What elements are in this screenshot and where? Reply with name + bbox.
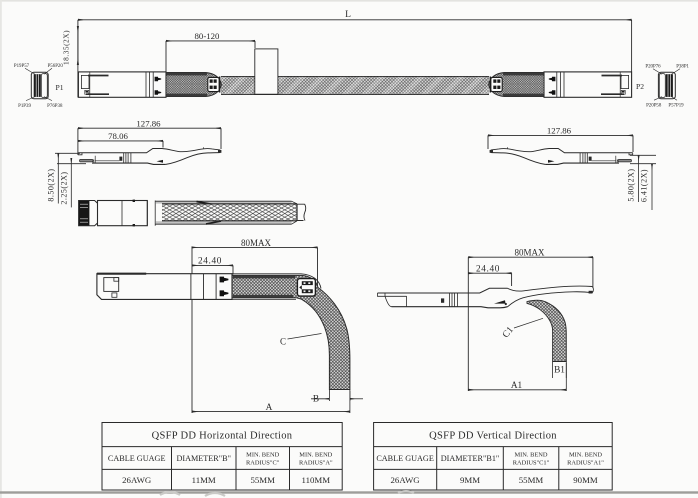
svg-text:2.25(2X): 2.25(2X) [60,171,69,204]
svg-text:RADIUS"A": RADIUS"A" [299,460,333,467]
svg-text:80MAX: 80MAX [241,238,272,248]
svg-text:110MM: 110MM [302,475,331,485]
svg-text:QSFP DD Horizontal Direction: QSFP DD Horizontal Direction [152,431,293,442]
svg-text:B1: B1 [554,366,565,376]
svg-text:B: B [313,394,319,404]
svg-text:11MM: 11MM [192,475,216,485]
svg-text:CABLE GUAGE: CABLE GUAGE [376,454,434,463]
svg-text:127.86: 127.86 [136,118,161,128]
svg-text:P57P19: P57P19 [668,103,684,108]
svg-text:RADIUS"C1": RADIUS"C1" [513,460,550,467]
svg-text:MIN. BEND: MIN. BEND [246,452,279,459]
svg-text:26AWG: 26AWG [391,475,421,485]
svg-text:DIAMETER"B": DIAMETER"B" [176,454,230,463]
svg-text:80-120: 80-120 [195,31,221,41]
svg-text:127.86: 127.86 [547,126,572,136]
svg-text:CABLE GUAGE: CABLE GUAGE [108,454,166,463]
svg-text:6.41(2X): 6.41(2X) [640,169,649,202]
svg-text:18.35(2X): 18.35(2X) [62,30,71,65]
svg-text:8.50(2X): 8.50(2X) [47,168,56,201]
svg-text:RADIUS"C": RADIUS"C" [246,460,280,467]
svg-text:55MM: 55MM [250,475,275,485]
svg-text:90MM: 90MM [573,475,598,485]
svg-text:55MM: 55MM [519,475,544,485]
svg-text:P2: P2 [636,82,644,91]
svg-text:78.06: 78.06 [108,131,128,141]
svg-text:RADIUS"A1": RADIUS"A1" [567,460,604,467]
svg-text:MIN. BEND: MIN. BEND [514,452,547,459]
svg-text:9MM: 9MM [460,475,480,485]
svg-text:P1: P1 [55,83,63,92]
svg-text:MIN. BEND: MIN. BEND [299,452,332,459]
svg-text:L: L [345,10,351,20]
svg-text:P20P58: P20P58 [646,103,662,108]
svg-text:5.80(2X): 5.80(2X) [627,168,636,201]
svg-text:26AWG: 26AWG [122,475,152,485]
svg-text:C: C [280,337,286,347]
svg-text:P76P38: P76P38 [47,104,63,109]
svg-text:P38P1: P38P1 [676,65,689,70]
svg-text:QSFP DD Vertical Direction: QSFP DD Vertical Direction [429,431,557,442]
svg-text:P19P57: P19P57 [14,64,30,69]
svg-text:P56P20: P56P20 [48,64,64,69]
svg-text:80MAX: 80MAX [514,247,545,257]
svg-text:P1P39: P1P39 [18,104,31,109]
svg-text:DIAMETER"B1": DIAMETER"B1" [441,454,500,463]
svg-text:MIN. BEND: MIN. BEND [569,452,602,459]
